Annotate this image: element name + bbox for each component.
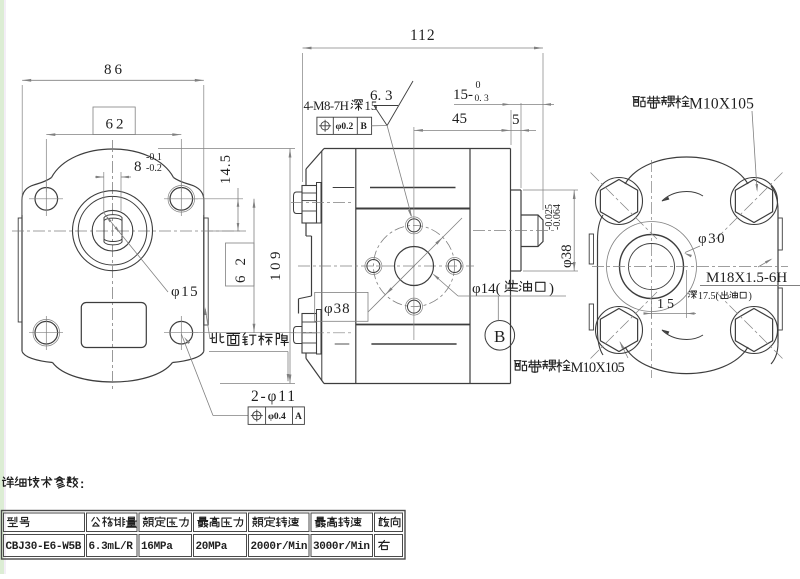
svg-text:0. 3: 0. 3 <box>475 94 490 104</box>
svg-text:2-φ11: 2-φ11 <box>251 388 297 405</box>
svg-text:φ0.2: φ0.2 <box>336 122 354 132</box>
svg-text:φ30: φ30 <box>698 231 726 247</box>
svg-text:M18X1.5-6H: M18X1.5-6H <box>706 270 787 286</box>
svg-text:109: 109 <box>268 248 284 281</box>
svg-text:20MPa: 20MPa <box>196 541 228 553</box>
svg-text:112: 112 <box>410 27 436 44</box>
svg-text:M10X105: M10X105 <box>571 360 625 376</box>
svg-text:45: 45 <box>452 111 467 127</box>
svg-text:A: A <box>295 412 302 422</box>
svg-text:15-: 15- <box>453 87 473 103</box>
svg-text:5: 5 <box>512 112 520 128</box>
svg-text:15: 15 <box>657 297 677 312</box>
svg-text:CBJ30-E6-W5B: CBJ30-E6-W5B <box>6 541 82 553</box>
svg-text:17.5(: 17.5( <box>698 291 720 302</box>
svg-text:B: B <box>361 122 368 132</box>
svg-text:-0.2: -0.2 <box>146 163 162 174</box>
svg-text:62: 62 <box>233 248 249 283</box>
svg-text:φ38: φ38 <box>559 244 575 268</box>
svg-text:4-M8-7H: 4-M8-7H <box>304 99 349 113</box>
svg-text:86: 86 <box>104 62 125 78</box>
svg-text:2000r/Min: 2000r/Min <box>251 541 308 553</box>
svg-text:B: B <box>494 327 505 346</box>
svg-text:6.3mL/R: 6.3mL/R <box>89 541 134 553</box>
svg-text:-0.064: -0.064 <box>552 204 563 230</box>
svg-text:M10X105: M10X105 <box>689 96 754 113</box>
svg-text:0: 0 <box>476 80 481 91</box>
svg-text:15: 15 <box>365 99 378 113</box>
svg-text:): ) <box>749 291 752 302</box>
svg-text:φ14(: φ14( <box>472 281 501 297</box>
svg-text:3000r/Min: 3000r/Min <box>313 541 370 553</box>
svg-text:): ) <box>549 281 554 297</box>
svg-text:62: 62 <box>106 117 127 133</box>
svg-text:8: 8 <box>134 159 142 175</box>
svg-text:14.5: 14.5 <box>218 154 234 184</box>
svg-text:φ0.4: φ0.4 <box>268 412 286 422</box>
svg-text:-0.1: -0.1 <box>146 152 162 163</box>
svg-text:φ38: φ38 <box>324 301 351 317</box>
svg-text::: : <box>80 476 84 491</box>
svg-text:16MPa: 16MPa <box>141 541 173 553</box>
svg-text:φ15: φ15 <box>171 284 199 300</box>
